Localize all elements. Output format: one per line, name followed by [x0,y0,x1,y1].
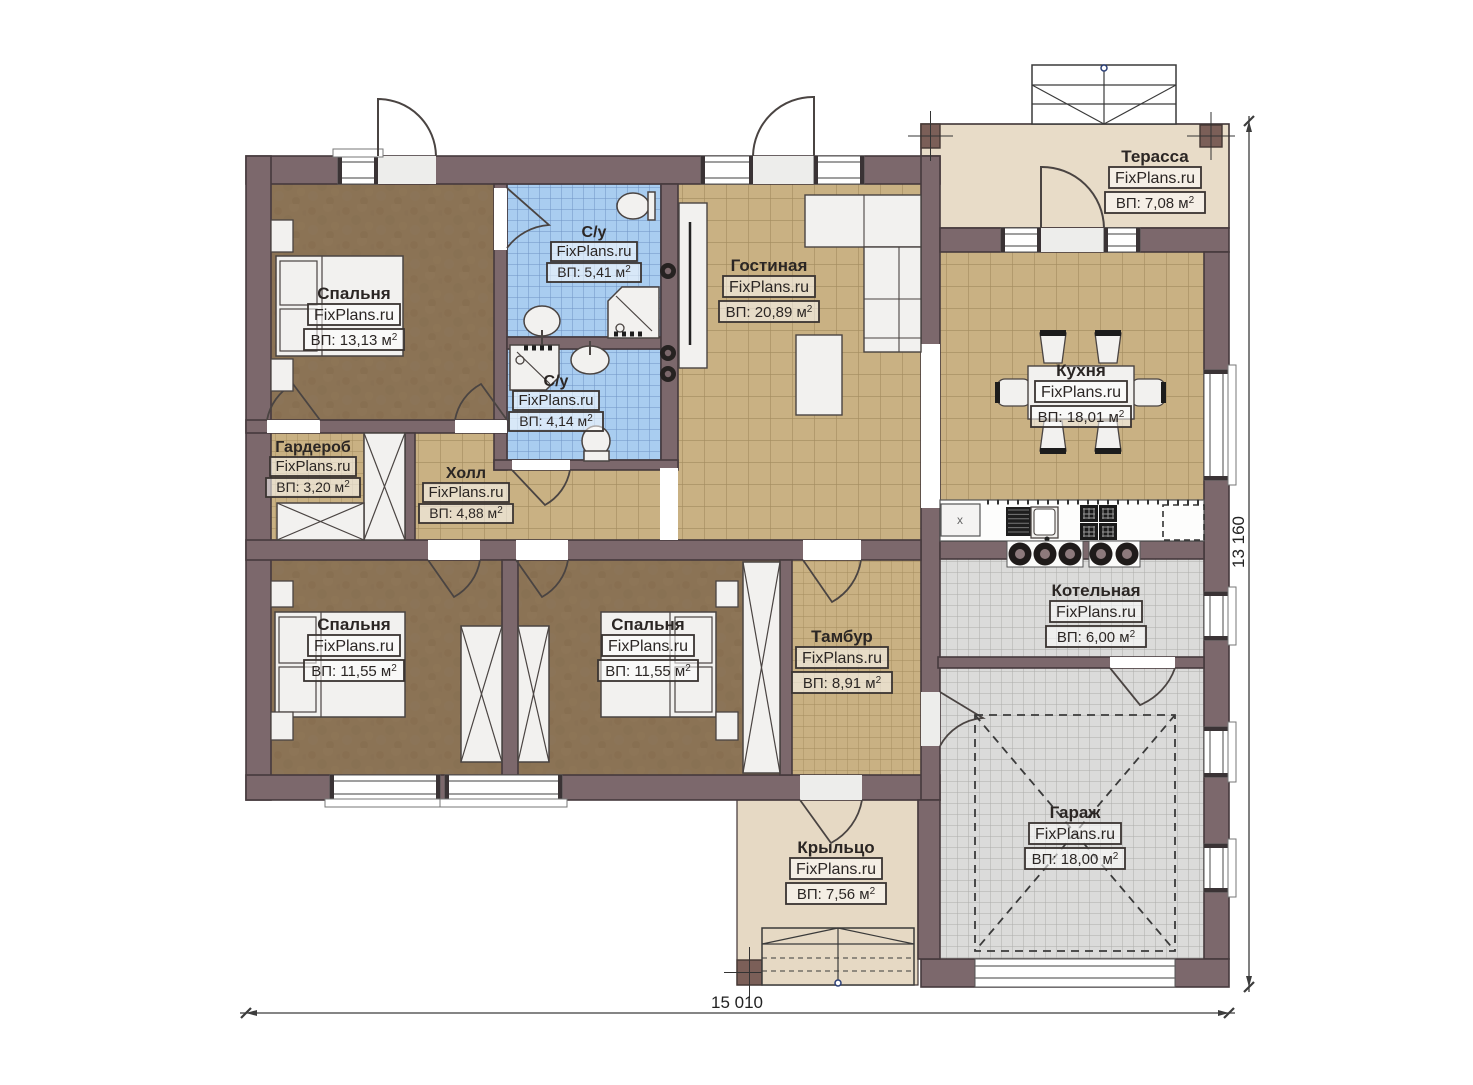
svg-text:FixPlans.ru: FixPlans.ru [802,650,882,667]
svg-text:ВП: 18,01 м2: ВП: 18,01 м2 [1038,409,1125,426]
svg-text:Терасса: Терасса [1121,147,1189,166]
svg-text:ВП: 18,00 м2: ВП: 18,00 м2 [1032,851,1119,868]
svg-text:FixPlans.ru: FixPlans.ru [1115,170,1195,187]
svg-text:FixPlans.ru: FixPlans.ru [518,392,593,409]
svg-text:FixPlans.ru: FixPlans.ru [1056,604,1136,621]
svg-text:FixPlans.ru: FixPlans.ru [275,458,350,475]
svg-text:ВП: 7,56 м2: ВП: 7,56 м2 [797,886,876,903]
svg-text:FixPlans.ru: FixPlans.ru [1041,384,1121,401]
svg-text:FixPlans.ru: FixPlans.ru [608,638,688,655]
svg-text:Гардероб: Гардероб [275,439,351,456]
svg-text:x: x [957,513,963,527]
svg-text:ВП: 20,89 м2: ВП: 20,89 м2 [726,304,813,321]
svg-text:FixPlans.ru: FixPlans.ru [1035,826,1115,843]
svg-text:ВП: 4,14 м2: ВП: 4,14 м2 [519,413,593,429]
svg-text:ВП: 5,41 м2: ВП: 5,41 м2 [557,264,631,280]
svg-text:FixPlans.ru: FixPlans.ru [314,638,394,655]
svg-text:FixPlans.ru: FixPlans.ru [428,484,503,501]
svg-text:15 010: 15 010 [711,993,763,1012]
svg-text:FixPlans.ru: FixPlans.ru [314,307,394,324]
svg-text:Холл: Холл [446,465,486,482]
svg-text:FixPlans.ru: FixPlans.ru [796,861,876,878]
svg-text:ВП: 13,13 м2: ВП: 13,13 м2 [311,332,398,349]
svg-text:ВП: 3,20 м2: ВП: 3,20 м2 [276,479,350,495]
svg-text:Котельная: Котельная [1051,581,1140,600]
svg-text:FixPlans.ru: FixPlans.ru [556,243,631,260]
svg-text:13 160: 13 160 [1229,516,1248,568]
svg-text:Гостиная: Гостиная [731,256,808,275]
svg-text:Кухня: Кухня [1056,361,1106,380]
svg-text:ВП: 6,00 м2: ВП: 6,00 м2 [1057,629,1136,646]
svg-text:Тамбур: Тамбур [811,627,873,646]
svg-text:ВП: 8,91 м2: ВП: 8,91 м2 [803,675,882,692]
svg-text:С/у: С/у [544,373,569,390]
svg-text:Крыльцо: Крыльцо [797,838,874,857]
svg-text:Спальня: Спальня [317,615,390,634]
svg-text:Спальня: Спальня [317,284,390,303]
svg-text:FixPlans.ru: FixPlans.ru [729,279,809,296]
svg-text:ВП: 11,55 м2: ВП: 11,55 м2 [605,663,691,680]
svg-text:Спальня: Спальня [611,615,684,634]
svg-text:ВП: 11,55 м2: ВП: 11,55 м2 [311,663,397,680]
svg-text:ВП: 4,88 м2: ВП: 4,88 м2 [429,505,503,521]
svg-text:С/у: С/у [582,224,607,241]
svg-text:Гараж: Гараж [1050,803,1102,822]
svg-text:ВП: 7,08 м2: ВП: 7,08 м2 [1116,195,1195,212]
